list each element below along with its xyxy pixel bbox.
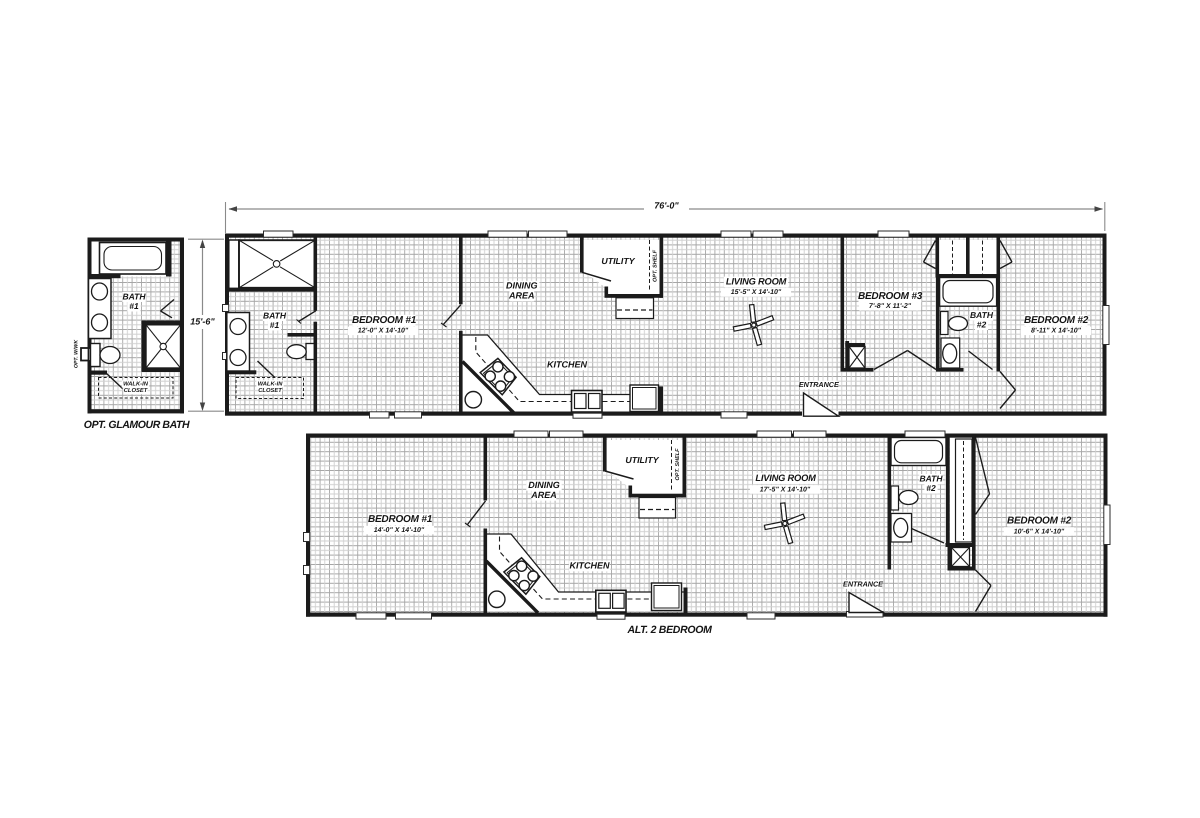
- svg-text:OPT. GLAMOUR BATH: OPT. GLAMOUR BATH: [84, 419, 190, 431]
- svg-text:LIVING ROOM: LIVING ROOM: [755, 473, 816, 483]
- svg-text:#2: #2: [926, 483, 936, 493]
- svg-text:LIVING ROOM: LIVING ROOM: [726, 276, 787, 286]
- svg-text:15'-6": 15'-6": [190, 316, 215, 326]
- svg-text:BEDROOM #2: BEDROOM #2: [1007, 516, 1072, 527]
- svg-text:KITCHEN: KITCHEN: [547, 359, 587, 369]
- svg-text:DINING: DINING: [528, 480, 560, 490]
- svg-text:BATH: BATH: [970, 310, 994, 320]
- svg-text:WALK-IN: WALK-IN: [258, 381, 284, 387]
- svg-text:#2: #2: [977, 319, 987, 329]
- svg-text:8'-11" X 14'-10": 8'-11" X 14'-10": [1031, 328, 1082, 335]
- svg-text:14'-0" X 14'-10": 14'-0" X 14'-10": [374, 527, 425, 534]
- svg-text:KITCHEN: KITCHEN: [570, 560, 610, 570]
- svg-text:#1: #1: [270, 320, 280, 330]
- svg-text:AREA: AREA: [530, 490, 557, 500]
- svg-text:BATH: BATH: [920, 473, 944, 483]
- svg-text:UTILITY: UTILITY: [601, 256, 635, 266]
- svg-text:CLOSET: CLOSET: [124, 387, 148, 394]
- svg-text:OPT. W/WK: OPT. W/WK: [73, 339, 79, 368]
- svg-text:ENTRANCE: ENTRANCE: [799, 380, 839, 389]
- svg-text:76'-0": 76'-0": [654, 201, 679, 211]
- svg-text:UTILITY: UTILITY: [625, 455, 659, 465]
- svg-text:DINING: DINING: [506, 280, 538, 290]
- svg-text:7'-8" X 11'-2": 7'-8" X 11'-2": [869, 303, 912, 310]
- svg-text:BEDROOM #1: BEDROOM #1: [368, 514, 433, 525]
- svg-text:OPT. SHELF: OPT. SHELF: [652, 249, 658, 282]
- svg-text:ALT. 2 BEDROOM: ALT. 2 BEDROOM: [626, 624, 712, 636]
- svg-text:BEDROOM #3: BEDROOM #3: [858, 291, 923, 302]
- svg-text:BATH: BATH: [263, 310, 287, 320]
- svg-text:WALK-IN: WALK-IN: [123, 382, 149, 388]
- svg-text:15'-5" X 14'-10": 15'-5" X 14'-10": [731, 289, 782, 296]
- svg-text:CLOSET: CLOSET: [258, 387, 282, 394]
- svg-text:BEDROOM #1: BEDROOM #1: [352, 315, 417, 326]
- svg-text:BEDROOM #2: BEDROOM #2: [1024, 315, 1089, 326]
- svg-text:12'-0" X 14'-10": 12'-0" X 14'-10": [358, 328, 409, 335]
- svg-text:17'-5" X 14'-10": 17'-5" X 14'-10": [760, 486, 811, 493]
- svg-text:10'-6" X 14'-10": 10'-6" X 14'-10": [1014, 528, 1065, 535]
- svg-text:ENTRANCE: ENTRANCE: [843, 579, 883, 588]
- svg-text:AREA: AREA: [508, 290, 535, 300]
- svg-text:#1: #1: [129, 301, 139, 311]
- svg-text:BATH: BATH: [123, 291, 147, 301]
- svg-text:OPT. SHELF: OPT. SHELF: [675, 448, 681, 481]
